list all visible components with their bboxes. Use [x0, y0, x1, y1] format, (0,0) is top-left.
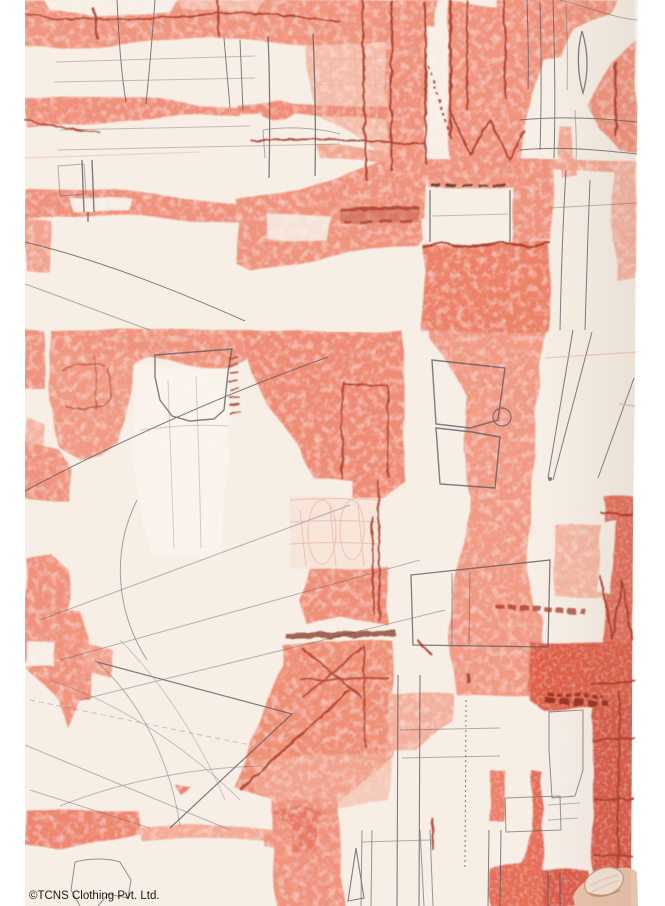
svg-text:©TCNS Clothing Pvt. Ltd.: ©TCNS Clothing Pvt. Ltd. — [29, 890, 160, 902]
